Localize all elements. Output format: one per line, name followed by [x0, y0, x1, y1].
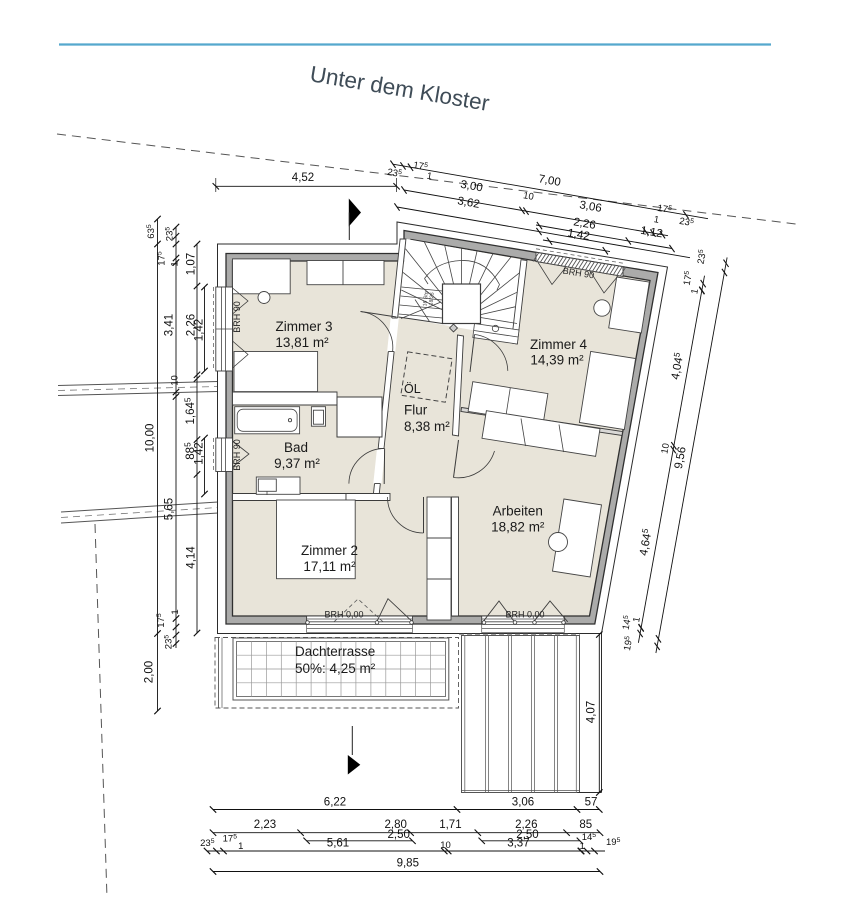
svg-text:57: 57: [585, 797, 598, 809]
svg-text:9,37 m²: 9,37 m²: [274, 456, 320, 471]
svg-text:4,14: 4,14: [186, 546, 198, 569]
svg-text:1,42: 1,42: [194, 442, 206, 464]
svg-text:10: 10: [440, 840, 451, 851]
svg-text:3,37: 3,37: [507, 838, 529, 850]
svg-text:85: 85: [579, 819, 592, 831]
svg-text:1: 1: [238, 841, 243, 852]
svg-text:5,65: 5,65: [164, 498, 176, 520]
svg-text:BRH 90: BRH 90: [232, 439, 242, 471]
svg-text:ÖL: ÖL: [404, 382, 421, 396]
svg-text:5,61: 5,61: [327, 838, 349, 850]
svg-text:4,07: 4,07: [586, 701, 598, 723]
svg-text:Zimmer 2: Zimmer 2: [301, 543, 358, 558]
svg-text:1,42: 1,42: [194, 319, 206, 341]
svg-text:9,85: 9,85: [397, 858, 419, 870]
svg-text:BRH 0,00: BRH 0,00: [324, 610, 363, 620]
svg-text:Dachterrasse: Dachterrasse: [295, 644, 375, 659]
svg-text:1,71: 1,71: [439, 819, 461, 831]
svg-text:6,22: 6,22: [324, 797, 346, 809]
svg-text:50%: 4,25 m²: 50%: 4,25 m²: [295, 661, 376, 676]
svg-text:4,52: 4,52: [292, 172, 314, 184]
svg-text:18,82 m²: 18,82 m²: [491, 520, 545, 535]
svg-text:Flur: Flur: [404, 403, 428, 418]
svg-text:2,00: 2,00: [144, 661, 156, 683]
svg-text:BRH 0,00: BRH 0,00: [505, 610, 544, 620]
svg-text:Bad: Bad: [284, 440, 308, 455]
svg-text:2,23: 2,23: [254, 819, 276, 831]
svg-text:3,41: 3,41: [164, 314, 176, 336]
svg-text:17,11 m²: 17,11 m²: [303, 559, 356, 574]
svg-text:14,39 m²: 14,39 m²: [530, 353, 584, 368]
svg-text:1: 1: [170, 609, 181, 614]
svg-text:2,50: 2,50: [388, 829, 410, 841]
svg-text:Zimmer 4: Zimmer 4: [530, 337, 587, 352]
svg-text:BRH 90: BRH 90: [232, 301, 242, 333]
svg-text:Arbeiten: Arbeiten: [493, 504, 543, 519]
svg-text:10,00: 10,00: [145, 424, 157, 453]
svg-text:1,07: 1,07: [186, 253, 198, 275]
svg-text:8,38 m²: 8,38 m²: [404, 419, 450, 434]
svg-text:10: 10: [170, 375, 181, 386]
svg-text:3,06: 3,06: [512, 797, 534, 809]
svg-text:10: 10: [659, 442, 672, 454]
svg-text:Zimmer 3: Zimmer 3: [276, 319, 333, 334]
svg-text:13,81 m²: 13,81 m²: [275, 335, 329, 350]
svg-text:10: 10: [522, 190, 534, 203]
svg-text:1: 1: [170, 261, 181, 266]
